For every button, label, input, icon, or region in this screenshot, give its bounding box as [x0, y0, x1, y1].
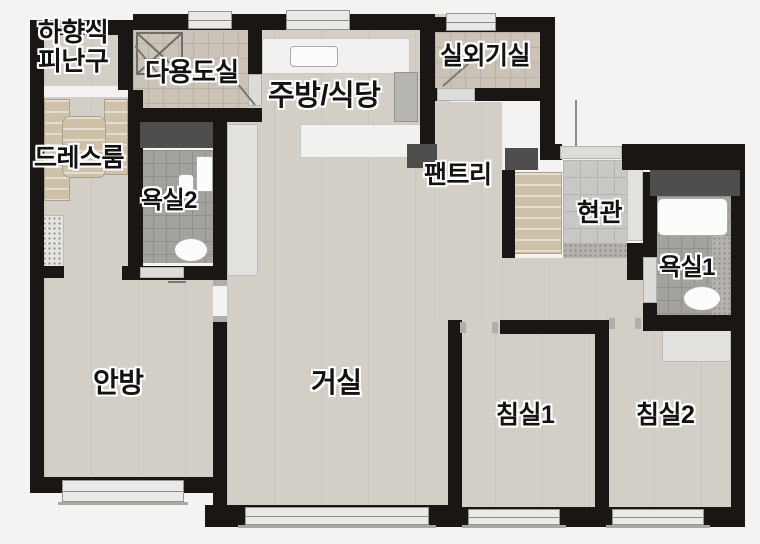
door-jamb — [635, 318, 641, 329]
wall — [540, 17, 555, 157]
room-label-pantry: 팬트리 — [424, 161, 492, 189]
wall — [133, 14, 423, 30]
wall — [540, 144, 562, 160]
bedroom1-window — [468, 509, 560, 525]
duct — [505, 148, 538, 170]
wall — [622, 144, 745, 170]
entrance-shoe-closet — [514, 172, 562, 254]
wall — [595, 320, 609, 507]
entrance-step — [563, 243, 627, 258]
bath1-door — [643, 257, 657, 303]
wall — [643, 315, 745, 331]
room-label-bedroom2: 침실2 — [636, 401, 694, 429]
door-jamb — [213, 280, 227, 286]
room-label-escape-hatch: 하향식 피난구 — [38, 18, 108, 76]
entrance-side-closet — [627, 165, 643, 241]
wall — [248, 14, 262, 76]
master-bedroom-window — [62, 480, 184, 502]
door-jamb — [213, 316, 227, 322]
window — [446, 13, 496, 31]
bath1-header-duct — [650, 170, 740, 196]
room-label-kitchen-dining: 주방/식당 — [268, 80, 380, 112]
hall-builtin-closet — [227, 124, 258, 276]
room-label-bedroom1: 침실1 — [496, 401, 554, 429]
window-sill — [58, 502, 188, 505]
wall — [500, 320, 607, 334]
bath2-vanity — [196, 156, 213, 192]
room-label-outdoor-unit: 실외기실 — [440, 42, 530, 70]
bath1-toilet — [683, 286, 721, 311]
entry-boundary-line — [575, 100, 577, 146]
wall — [420, 14, 435, 144]
room-label-entrance: 현관 — [577, 199, 622, 227]
room-label-bath1: 욕실1 — [659, 255, 715, 282]
bedroom2-window — [612, 509, 704, 525]
wall — [213, 108, 227, 280]
window — [286, 10, 350, 30]
front-door — [560, 146, 622, 159]
kitchen-sink — [290, 46, 338, 67]
utility-door — [248, 74, 262, 106]
room-label-living-room: 거실 — [311, 367, 362, 398]
refrigerator — [394, 72, 418, 122]
wall — [30, 266, 64, 278]
door-jamb — [460, 322, 466, 333]
door-jamb — [492, 322, 498, 333]
bath2-door — [140, 267, 184, 278]
pantry-floor — [434, 102, 502, 320]
wall — [502, 170, 515, 258]
wall — [627, 243, 643, 280]
room-label-utility: 다용도실 — [145, 58, 239, 87]
outdoor-unit-louver — [437, 88, 475, 101]
window — [188, 11, 232, 29]
window-sill — [462, 525, 566, 528]
wall — [448, 320, 462, 507]
window-sill — [238, 525, 436, 528]
wall — [133, 108, 262, 122]
room-label-dress-room: 드레스룸 — [34, 144, 124, 172]
room-label-bath2: 욕실2 — [141, 188, 197, 215]
window-sill — [606, 525, 710, 528]
wall — [118, 20, 133, 90]
duct — [140, 122, 213, 148]
bath2-toilet — [174, 238, 208, 262]
wall — [731, 162, 745, 507]
door-jamb — [609, 318, 615, 329]
hall-passage-floor — [502, 258, 643, 320]
wall — [30, 20, 44, 492]
room-label-master-bedroom: 안방 — [93, 367, 144, 398]
bath1-bathtub — [657, 198, 728, 236]
floorplan-canvas: 하향식 피난구 다용도실 주방/식당 실외기실 드레스룸 욕실2 팬트리 현관 … — [0, 0, 760, 544]
living-room-window — [245, 507, 429, 525]
